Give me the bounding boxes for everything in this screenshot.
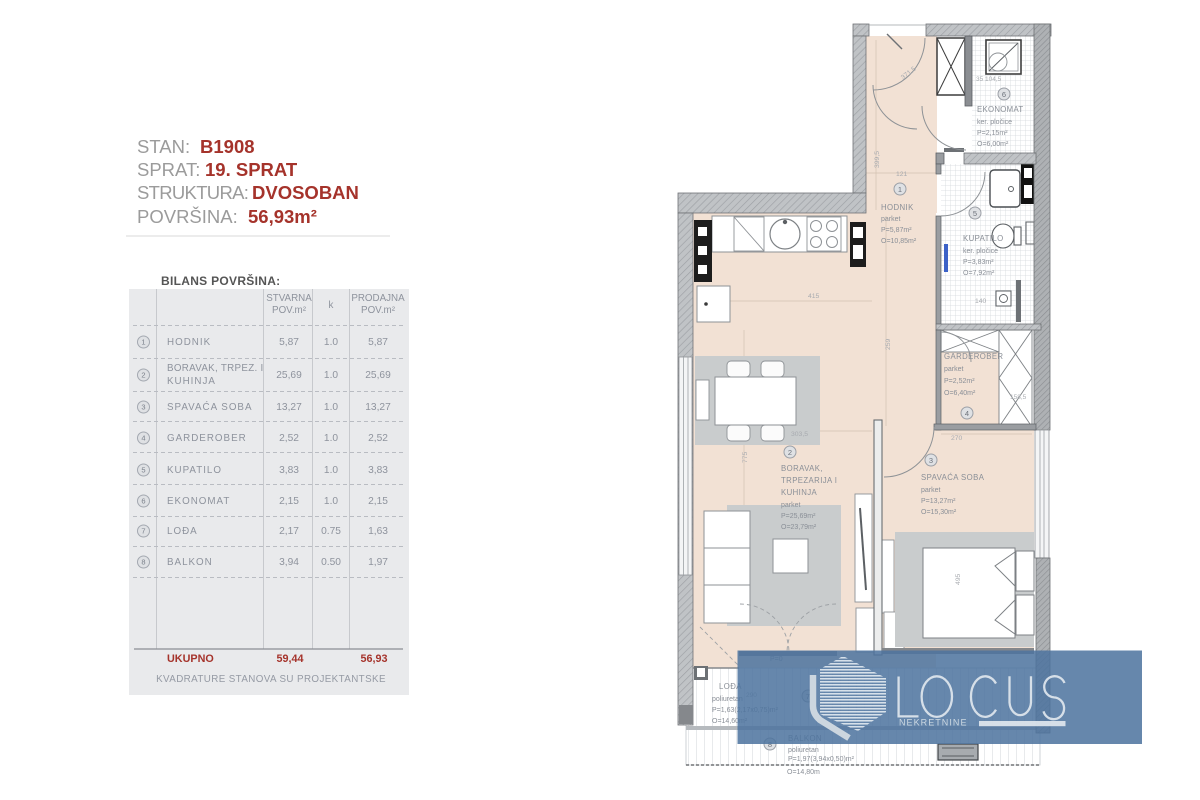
svg-text:59,44: 59,44 — [276, 653, 303, 665]
svg-text:2,15: 2,15 — [279, 496, 299, 507]
svg-text:STAN:: STAN: — [137, 136, 190, 157]
svg-text:1,63: 1,63 — [368, 526, 388, 537]
svg-text:TRPEZARIJA I: TRPEZARIJA I — [781, 476, 837, 485]
svg-text:6: 6 — [1002, 90, 1006, 99]
svg-text:0.50: 0.50 — [321, 557, 341, 568]
svg-text:POV.m²: POV.m² — [361, 305, 396, 316]
svg-text:5: 5 — [973, 209, 977, 218]
svg-text:259: 259 — [885, 338, 892, 350]
svg-text:EKONOMAT: EKONOMAT — [977, 105, 1023, 114]
svg-text:O=15,30m²: O=15,30m² — [921, 509, 957, 516]
svg-text:2,52: 2,52 — [368, 433, 388, 444]
svg-text:4: 4 — [141, 434, 145, 443]
svg-text:2,17: 2,17 — [279, 526, 299, 537]
svg-text:BORAVAK, TRPEZ. I: BORAVAK, TRPEZ. I — [167, 363, 264, 374]
svg-text:O=6,00m²: O=6,00m² — [977, 141, 1009, 148]
svg-text:GARDEROBER: GARDEROBER — [944, 352, 1003, 361]
svg-text:1.0: 1.0 — [324, 337, 338, 348]
svg-text:BORAVAK,: BORAVAK, — [781, 464, 823, 473]
svg-text:56,93m²: 56,93m² — [248, 206, 317, 227]
svg-text:3,83: 3,83 — [279, 465, 299, 476]
svg-text:KUHINJA: KUHINJA — [781, 488, 818, 497]
svg-text:ker. pločice: ker. pločice — [963, 248, 998, 255]
svg-text:140: 140 — [975, 298, 987, 305]
svg-text:DVOSOBAN: DVOSOBAN — [252, 182, 359, 203]
svg-text:P=2,15m²: P=2,15m² — [977, 130, 1008, 137]
svg-text:121: 121 — [896, 171, 908, 178]
svg-text:EKONOMAT: EKONOMAT — [167, 496, 230, 507]
svg-text:3,83: 3,83 — [368, 465, 388, 476]
svg-text:NEKRETNINE: NEKRETNINE — [899, 718, 968, 728]
svg-text:2,52: 2,52 — [279, 433, 299, 444]
svg-text:SPRAT:: SPRAT: — [137, 159, 200, 180]
svg-text:P=13,27m²: P=13,27m² — [921, 498, 956, 505]
svg-text:1.0: 1.0 — [324, 402, 338, 413]
svg-text:7: 7 — [141, 527, 145, 536]
svg-text:P=25,69m²: P=25,69m² — [781, 513, 816, 520]
svg-text:0.75: 0.75 — [321, 526, 341, 537]
svg-text:parket: parket — [921, 487, 941, 494]
svg-text:KUHINJA: KUHINJA — [167, 376, 216, 387]
svg-text:P=2,52m²: P=2,52m² — [944, 378, 975, 385]
svg-text:1,97: 1,97 — [368, 557, 388, 568]
svg-text:3,94: 3,94 — [279, 557, 299, 568]
svg-text:O=7,92m²: O=7,92m² — [963, 270, 995, 277]
svg-text:13,27: 13,27 — [365, 402, 391, 413]
svg-text:19. SPRAT: 19. SPRAT — [205, 159, 298, 180]
svg-text:1.0: 1.0 — [324, 433, 338, 444]
svg-text:POV.m²: POV.m² — [272, 305, 307, 316]
svg-text:13,27: 13,27 — [276, 402, 302, 413]
svg-text:HODNIK: HODNIK — [881, 203, 914, 212]
svg-text:2,15: 2,15 — [368, 496, 388, 507]
svg-text:158,5: 158,5 — [1010, 394, 1027, 401]
svg-text:parket: parket — [781, 502, 801, 509]
svg-text:303,5: 303,5 — [791, 431, 808, 438]
svg-text:SPAVAĆA SOBA: SPAVAĆA SOBA — [167, 402, 253, 413]
svg-text:4: 4 — [965, 409, 969, 418]
svg-text:495: 495 — [955, 573, 962, 585]
svg-text:SPAVAĆA SOBA: SPAVAĆA SOBA — [921, 473, 985, 482]
svg-text:399,5: 399,5 — [874, 151, 881, 168]
svg-text:STVARNA: STVARNA — [266, 293, 312, 304]
svg-text:KVADRATURE STANOVA SU PROJEKTA: KVADRATURE STANOVA SU PROJEKTANTSKE — [156, 674, 386, 685]
svg-text:O=23,79m²: O=23,79m² — [781, 524, 817, 531]
svg-text:25,69: 25,69 — [276, 370, 302, 381]
svg-text:1.0: 1.0 — [324, 465, 338, 476]
svg-text:parket: parket — [944, 366, 964, 373]
svg-text:STRUKTURA:: STRUKTURA: — [137, 182, 248, 203]
svg-text:1: 1 — [141, 338, 145, 347]
svg-text:HODNIK: HODNIK — [167, 337, 211, 348]
svg-text:3: 3 — [141, 403, 145, 412]
svg-text:P=5,87m²: P=5,87m² — [881, 227, 912, 234]
svg-text:parket: parket — [881, 216, 901, 223]
svg-text:KUPATILO: KUPATILO — [963, 234, 1004, 243]
svg-text:poliuretan: poliuretan — [788, 747, 819, 754]
svg-text:PRODAJNA: PRODAJNA — [351, 293, 405, 304]
svg-text:56,93: 56,93 — [360, 653, 387, 665]
svg-text:UKUPNO: UKUPNO — [167, 653, 214, 665]
svg-text:B1908: B1908 — [200, 136, 255, 157]
svg-text:k: k — [329, 300, 334, 311]
svg-text:775: 775 — [742, 451, 749, 463]
svg-text:3: 3 — [929, 456, 933, 465]
svg-text:2: 2 — [141, 371, 145, 380]
svg-text:270: 270 — [951, 435, 963, 442]
svg-text:1.0: 1.0 — [324, 496, 338, 507]
svg-text:BILANS POVRŠINA:: BILANS POVRŠINA: — [161, 273, 280, 288]
svg-text:8: 8 — [141, 558, 145, 567]
svg-text:P=3,83m²: P=3,83m² — [963, 259, 994, 266]
svg-text:25,69: 25,69 — [365, 370, 391, 381]
svg-text:5,87: 5,87 — [368, 337, 388, 348]
svg-text:2: 2 — [788, 448, 792, 457]
svg-text:P=1,97(3,94x0,50)m²: P=1,97(3,94x0,50)m² — [788, 756, 855, 763]
svg-text:35 104,5: 35 104,5 — [976, 76, 1002, 83]
svg-text:O=6,40m²: O=6,40m² — [944, 390, 976, 397]
svg-text:1.0: 1.0 — [324, 370, 338, 381]
svg-text:GARDEROBER: GARDEROBER — [167, 433, 247, 444]
svg-text:O=14,80m: O=14,80m — [787, 769, 820, 776]
svg-text:6: 6 — [141, 497, 145, 506]
svg-text:O=10,85m²: O=10,85m² — [881, 238, 917, 245]
svg-text:5: 5 — [141, 466, 145, 475]
svg-text:ker. pločice: ker. pločice — [977, 119, 1012, 126]
svg-text:BALKON: BALKON — [167, 557, 213, 568]
svg-text:1: 1 — [898, 185, 902, 194]
svg-text:KUPATILO: KUPATILO — [167, 465, 222, 476]
svg-text:POVRŠINA:: POVRŠINA: — [137, 206, 238, 227]
svg-text:LOĐA: LOĐA — [167, 526, 198, 537]
svg-text:5,87: 5,87 — [279, 337, 299, 348]
svg-text:415: 415 — [808, 293, 820, 300]
